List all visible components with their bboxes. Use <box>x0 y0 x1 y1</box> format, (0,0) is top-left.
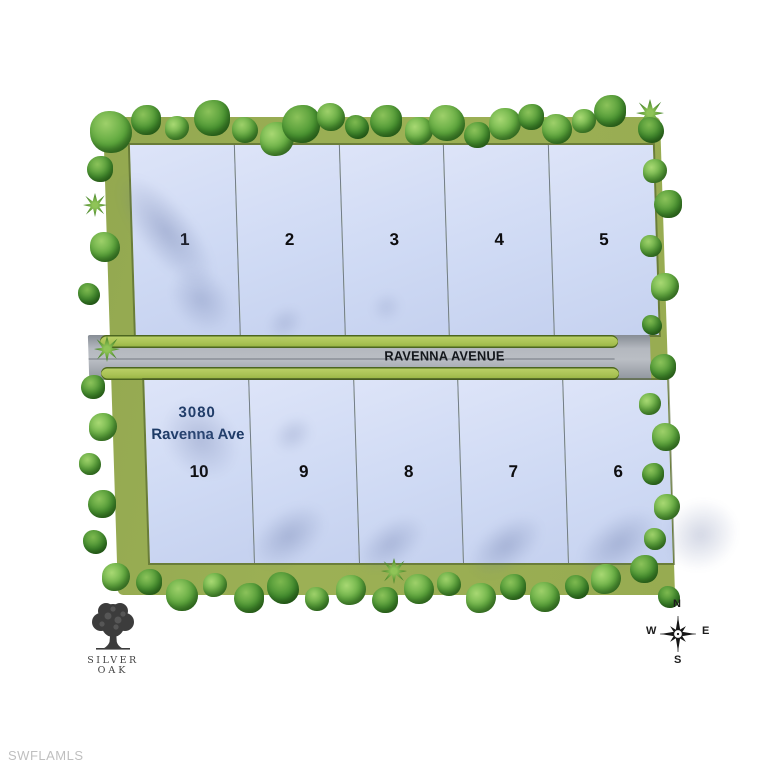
lot-7: 7 <box>459 380 570 563</box>
tree-icon <box>79 453 101 475</box>
lot-1: 1 <box>130 145 241 335</box>
tree-icon <box>78 283 100 305</box>
compass-north-label: N <box>673 598 681 610</box>
lot-number-5: 5 <box>599 230 609 250</box>
compass-star-icon <box>659 615 697 653</box>
compass-rose: N E S W <box>640 598 716 674</box>
lot-number-9: 9 <box>299 462 309 482</box>
lot-row-top: 1 2 3 4 5 <box>130 145 659 335</box>
silver-oak-logo: SILVER OAK <box>78 599 148 676</box>
lot-2: 2 <box>235 145 346 335</box>
lot-address-label: 3080 Ravenna Ave <box>145 402 250 446</box>
lot-row-bottom: 3080 Ravenna Ave 10 9 8 7 6 <box>144 380 673 563</box>
compass-east-label: E <box>702 625 709 637</box>
mls-watermark: SWFLAMLS <box>8 748 84 763</box>
ravenna-avenue-road: RAVENNA AVENUE <box>110 335 668 380</box>
lot-number-4: 4 <box>494 230 504 250</box>
lot-number-8: 8 <box>404 462 414 482</box>
road-name-label: RAVENNA AVENUE <box>384 349 505 364</box>
road-verge-bottom <box>101 367 619 380</box>
lot-number-6: 6 <box>613 462 623 482</box>
road-verge-top <box>100 335 618 348</box>
lot-10: 3080 Ravenna Ave 10 <box>144 380 255 563</box>
tree-icon <box>83 530 107 554</box>
lot-number-7: 7 <box>508 462 518 482</box>
site-plan-rendering: 1 2 3 4 5 RAVENNA AVENUE 3080 Ravenna Av… <box>0 0 768 768</box>
lot-4: 4 <box>444 145 555 335</box>
palm-tree-icon <box>83 193 107 217</box>
lot-9: 9 <box>249 380 360 563</box>
address-number: 3080 <box>145 402 249 424</box>
lot-6: 6 <box>563 380 673 563</box>
oak-tree-icon <box>83 599 143 651</box>
lot-8: 8 <box>354 380 465 563</box>
address-street: Ravenna Ave <box>146 424 250 446</box>
lot-number-2: 2 <box>285 230 295 250</box>
lot-3: 3 <box>339 145 450 335</box>
lot-number-1: 1 <box>180 230 190 250</box>
lot-number-10: 10 <box>189 462 209 482</box>
lot-number-3: 3 <box>389 230 399 250</box>
plat-area: 1 2 3 4 5 RAVENNA AVENUE 3080 Ravenna Av… <box>103 117 675 595</box>
logo-wordmark: SILVER OAK <box>78 656 148 676</box>
compass-south-label: S <box>674 654 681 666</box>
logo-line-oak: OAK <box>78 666 148 676</box>
compass-west-label: W <box>646 625 656 637</box>
lot-5: 5 <box>549 145 659 335</box>
tree-icon <box>88 490 116 518</box>
